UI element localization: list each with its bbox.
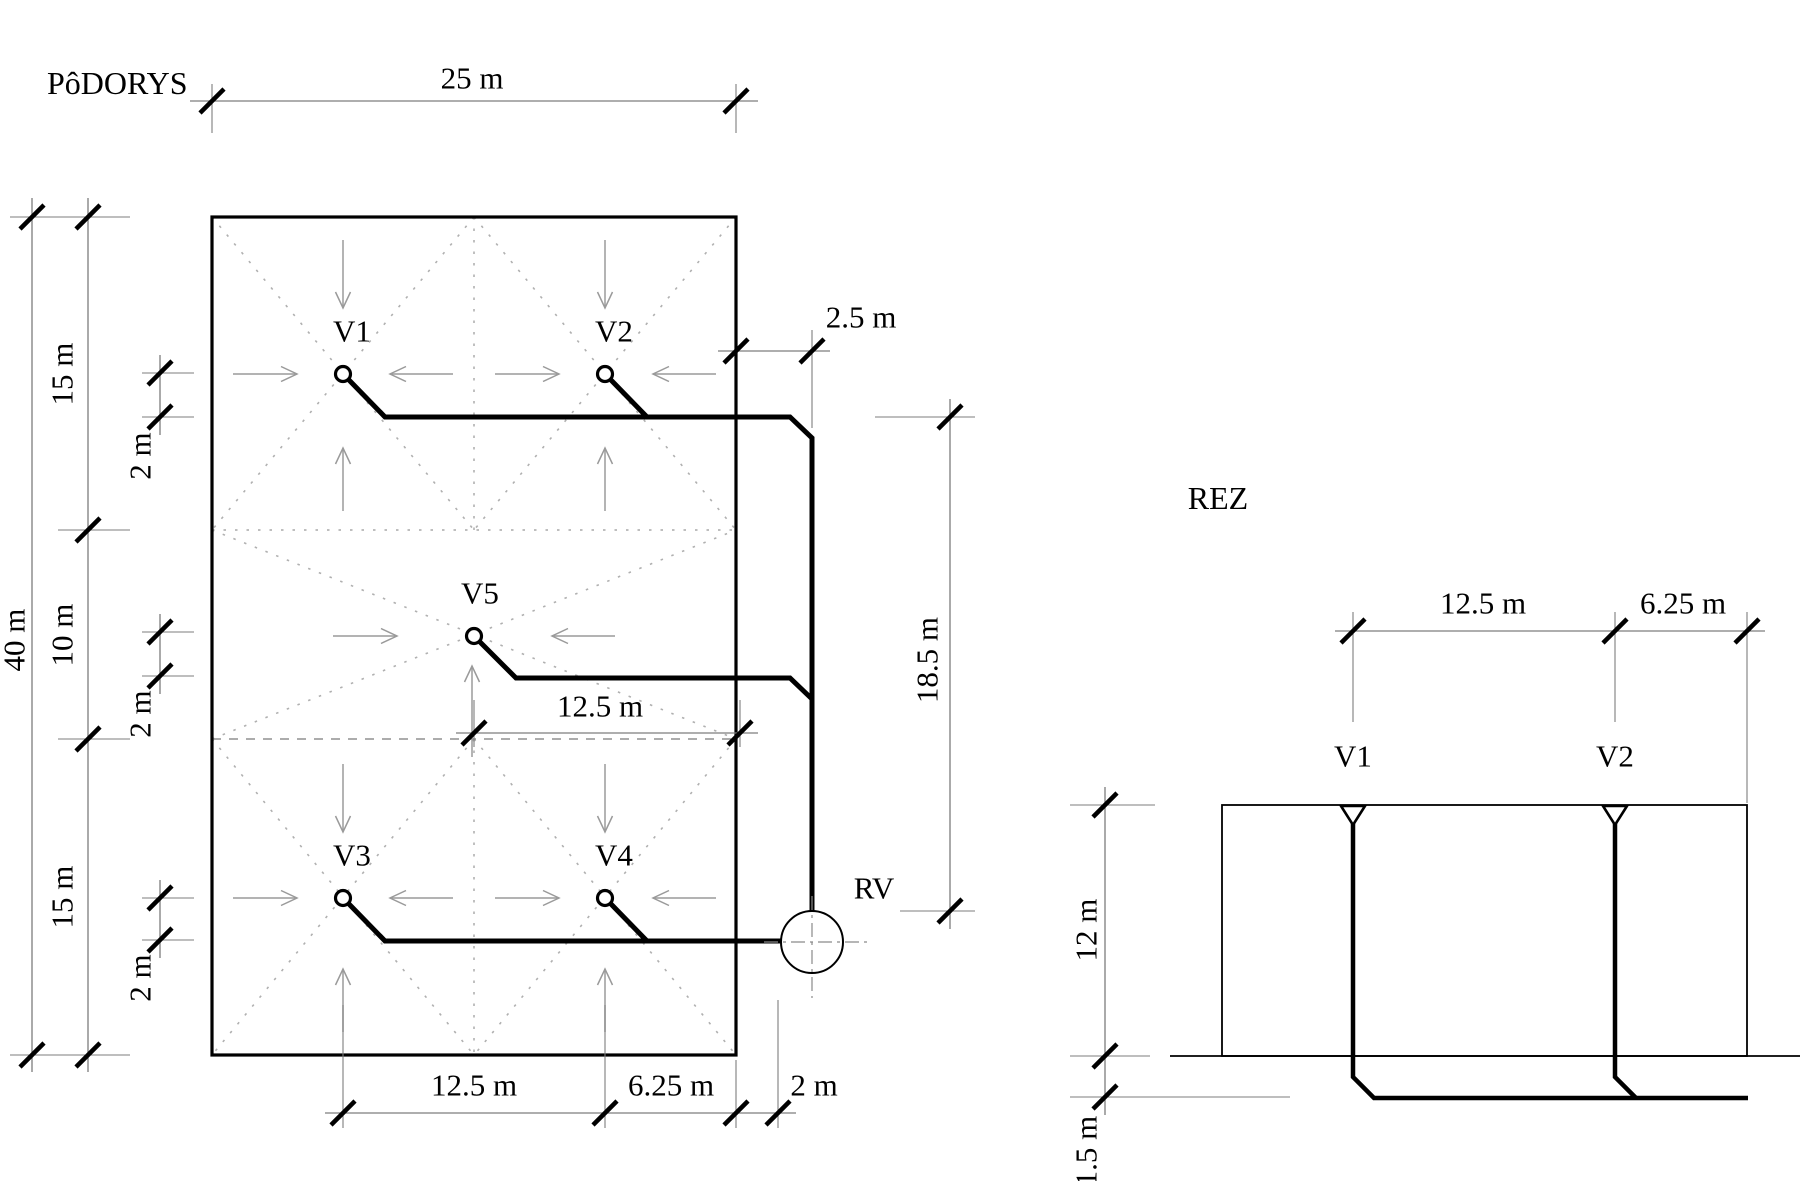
dim-bottom-12-5m: 12.5 m xyxy=(431,1068,517,1103)
label-v1: V1 xyxy=(333,314,371,349)
technical-drawing-canvas: PôDORYS 25 m 40 m 15 m 10 m 15 m 2 m 2 m… xyxy=(0,0,1800,1181)
roof-drainage-drawing: PôDORYS 25 m 40 m 15 m 10 m 15 m 2 m 2 m… xyxy=(0,0,1800,1181)
pipe-v2-branch xyxy=(610,379,647,417)
dim-bottom-6-25m: 6.25 m xyxy=(628,1068,714,1103)
drain-pipes xyxy=(348,379,812,941)
section-extension-lines xyxy=(1070,612,1747,1097)
roof-funnels xyxy=(1341,806,1627,825)
rv-riser-symbol xyxy=(764,896,872,998)
dim-offset-2m-2: 2 m xyxy=(123,690,158,737)
dim-seg-15m-top: 15 m xyxy=(45,343,80,406)
section-title: REZ xyxy=(1188,480,1248,516)
funnel-v2 xyxy=(1603,806,1627,825)
section-dimension-ticks xyxy=(1093,619,1759,1109)
drain-v3 xyxy=(336,891,351,906)
label-rv: RV xyxy=(854,871,895,906)
dim-bottom-2m: 2 m xyxy=(790,1068,837,1103)
dim-right-2-5m: 2.5 m xyxy=(826,300,897,335)
plan-title: PôDORYS xyxy=(47,65,188,101)
label-v2: V2 xyxy=(595,314,633,349)
dim-top-25m: 25 m xyxy=(441,61,504,96)
section-dimension-lines xyxy=(1105,631,1765,1115)
label-v3: V3 xyxy=(333,838,371,873)
plan-view: PôDORYS 25 m 40 m 15 m 10 m 15 m 2 m 2 m… xyxy=(0,61,975,1129)
drain-v5 xyxy=(467,629,482,644)
pipe-row3 xyxy=(348,903,781,941)
label-v4: V4 xyxy=(595,838,633,873)
building-section-outline xyxy=(1222,805,1747,1056)
dim-mid-12-5m: 12.5 m xyxy=(557,689,643,724)
dim-riser-18-5m: 18.5 m xyxy=(910,617,945,703)
section-dim-1-5m: 1.5 m xyxy=(1069,1116,1104,1181)
pipe-row1-riser xyxy=(348,379,812,911)
dim-seg-10m: 10 m xyxy=(45,604,80,667)
dim-offset-2m-3: 2 m xyxy=(123,954,158,1001)
section-view: REZ 12.5 m 6.25 m V1 V2 12 m 1.5 m xyxy=(1069,480,1800,1181)
dim-offset-2m-1: 2 m xyxy=(123,432,158,479)
section-dim-6-25m: 6.25 m xyxy=(1640,586,1726,621)
pipe-row2 xyxy=(479,641,812,699)
section-dim-12-5m: 12.5 m xyxy=(1440,586,1526,621)
dim-seg-15m-bottom: 15 m xyxy=(45,866,80,929)
dim-left-40m: 40 m xyxy=(0,609,32,672)
section-label-v1: V1 xyxy=(1334,739,1372,774)
pipe-v4-branch xyxy=(610,903,647,941)
funnel-v1 xyxy=(1341,806,1365,825)
section-dim-12m: 12 m xyxy=(1069,899,1104,962)
drain-v1 xyxy=(336,367,351,382)
drain-v2 xyxy=(598,367,613,382)
drain-v4 xyxy=(598,891,613,906)
section-label-v2: V2 xyxy=(1596,739,1634,774)
label-v5: V5 xyxy=(461,576,499,611)
